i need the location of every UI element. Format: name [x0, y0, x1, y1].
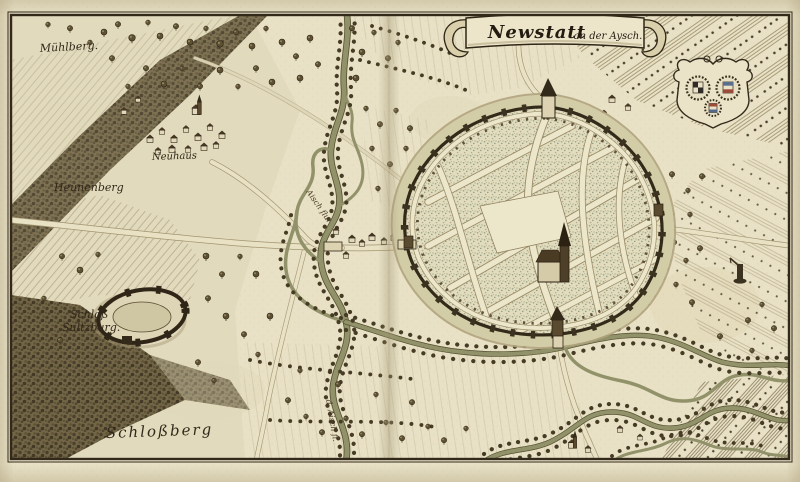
- map-engraving: Mühlberg. Neuhaus Heunenberg Schloß Sult…: [0, 0, 800, 482]
- label-schloss-line2: Sultzburg.: [62, 321, 120, 334]
- castle-gate: [122, 336, 132, 344]
- west-tower: [404, 236, 413, 248]
- engraving-canvas: Mühlberg. Neuhaus Heunenberg Schloß Sult…: [0, 0, 800, 482]
- label-heunenberg: Heunenberg: [53, 181, 124, 194]
- page-fold-crease: [378, 0, 400, 482]
- label-schlossberg: Schloßberg: [106, 420, 214, 442]
- label-schloss-line1: Schloß: [70, 308, 108, 321]
- east-tower: [654, 204, 663, 216]
- river-bridge: [324, 242, 342, 251]
- map-title-suffix: an der Aysch.: [574, 31, 643, 42]
- map-title: Newstatt: [487, 22, 586, 43]
- arms-shield-right: [723, 82, 733, 93]
- label-neuhaus: Neuhaus: [151, 150, 197, 163]
- arms-shield-left: [693, 82, 703, 93]
- arms-shield-bottom: [709, 104, 717, 113]
